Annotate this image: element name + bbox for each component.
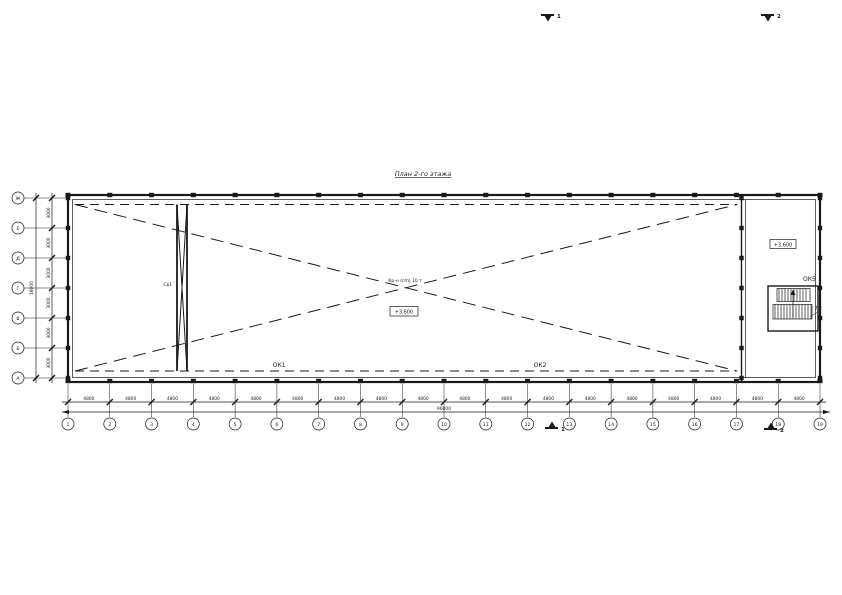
dim-value: 4800 bbox=[585, 396, 596, 402]
axis-number: 19 bbox=[817, 422, 823, 428]
axis-number: 12 bbox=[525, 422, 531, 428]
dim-value: 4800 bbox=[250, 396, 261, 402]
window-label-ok5: ОК5 bbox=[803, 276, 816, 283]
column-mark-bottom bbox=[233, 379, 238, 383]
floor-plan-svg: План 2-го этажа Св1 Кр-н (г/п) 10 т +3.6… bbox=[0, 0, 842, 595]
column-mark-top bbox=[525, 193, 530, 197]
column-mark-bottom bbox=[609, 379, 614, 383]
dim-value: 4800 bbox=[626, 396, 637, 402]
axis-letter: Б bbox=[16, 346, 19, 352]
column-mark-right-wall bbox=[818, 256, 822, 260]
column-mark-top bbox=[734, 193, 739, 197]
column-mark-top bbox=[191, 193, 196, 197]
dim-value: 4800 bbox=[376, 396, 387, 402]
drawing-title: План 2-го этажа bbox=[395, 170, 451, 178]
dim-value: 4800 bbox=[418, 396, 429, 402]
axis-number: 1 bbox=[67, 422, 70, 428]
column-mark-top bbox=[650, 193, 655, 197]
axis-number: 2 bbox=[108, 422, 111, 428]
axis-number: 11 bbox=[483, 422, 489, 428]
dim-value: 4800 bbox=[334, 396, 345, 402]
dim-value: 4800 bbox=[209, 396, 220, 402]
dim-value: 4800 bbox=[292, 396, 303, 402]
building-inner-wall-line bbox=[73, 200, 816, 378]
column-mark-partition-wall bbox=[739, 226, 743, 230]
column-mark-top bbox=[107, 193, 112, 197]
column-mark-top bbox=[776, 193, 781, 197]
axis-number: 15 bbox=[650, 422, 656, 428]
dim-value: 4800 bbox=[794, 396, 805, 402]
axis-letter: А bbox=[16, 376, 20, 382]
column-mark-bottom bbox=[442, 379, 447, 383]
dim-value: 4800 bbox=[668, 396, 679, 402]
dim-value: 3000 bbox=[46, 237, 52, 248]
column-mark-right-wall bbox=[818, 286, 822, 290]
braced-shaft bbox=[177, 205, 187, 372]
axis-letter: Ж bbox=[16, 196, 21, 202]
section-number-left-top: 1 bbox=[557, 14, 561, 20]
axis-number: 5 bbox=[234, 422, 237, 428]
column-mark-bottom bbox=[358, 379, 363, 383]
axis-number: 8 bbox=[359, 422, 362, 428]
column-mark-top bbox=[274, 193, 279, 197]
axis-number: 6 bbox=[275, 422, 278, 428]
column-mark-partition-wall bbox=[739, 196, 743, 200]
axis-letter: Г bbox=[17, 286, 20, 292]
column-mark-right-wall bbox=[818, 316, 822, 320]
axis-number: 14 bbox=[608, 422, 614, 428]
column-mark-top bbox=[442, 193, 447, 197]
dim-value: 3000 bbox=[46, 267, 52, 278]
axis-number: 3 bbox=[150, 422, 153, 428]
column-mark-partition-wall bbox=[739, 376, 743, 380]
section-marker-left-top bbox=[541, 15, 554, 22]
column-mark-partition-wall bbox=[739, 286, 743, 290]
dim-arrow-right bbox=[823, 410, 830, 414]
column-mark-bottom bbox=[650, 379, 655, 383]
dim-value: 4800 bbox=[501, 396, 512, 402]
dim-value: 4800 bbox=[752, 396, 763, 402]
floor-plan-canvas: План 2-го этажа Св1 Кр-н (г/п) 10 т +3.6… bbox=[0, 0, 842, 595]
column-mark-right-wall bbox=[818, 226, 822, 230]
column-mark-top bbox=[400, 193, 405, 197]
column-mark-top bbox=[483, 193, 488, 197]
column-mark-bottom bbox=[483, 379, 488, 383]
axis-number: 10 bbox=[441, 422, 447, 428]
section-marker-left-bottom bbox=[545, 422, 558, 429]
column-mark-partition-wall bbox=[739, 346, 743, 350]
column-mark-bottom bbox=[734, 379, 739, 383]
center-note: Кр-н (г/п) 10 т bbox=[388, 278, 422, 284]
dim-value: 4800 bbox=[543, 396, 554, 402]
stair-label: Л2 bbox=[815, 306, 822, 312]
column-mark-top bbox=[358, 193, 363, 197]
column-mark-bottom bbox=[274, 379, 279, 383]
dim-value: 3000 bbox=[46, 207, 52, 218]
column-mark-bottom bbox=[149, 379, 154, 383]
column-mark-right-wall bbox=[818, 376, 822, 380]
window-label-ok1: ОК1 bbox=[273, 362, 286, 369]
dim-value: 4800 bbox=[83, 396, 94, 402]
building-outline bbox=[68, 195, 820, 382]
column-mark-top bbox=[233, 193, 238, 197]
axis-letter: Д bbox=[16, 256, 20, 262]
column-mark-top bbox=[609, 193, 614, 197]
section-number-right-top: 2 bbox=[777, 14, 781, 20]
column-mark-top bbox=[692, 193, 697, 197]
axis-number: 13 bbox=[566, 422, 572, 428]
column-mark-bottom bbox=[567, 379, 572, 383]
axis-number: 16 bbox=[692, 422, 698, 428]
dim-value: 4800 bbox=[167, 396, 178, 402]
section-marker-right-top bbox=[761, 15, 774, 22]
window-label-ok2: ОК2 bbox=[534, 362, 547, 369]
column-mark-top bbox=[149, 193, 154, 197]
column-mark-bottom bbox=[316, 379, 321, 383]
stair-level-value: +3.600 bbox=[774, 243, 793, 249]
axis-number: 18 bbox=[775, 422, 781, 428]
column-mark-bottom bbox=[191, 379, 196, 383]
dim-value: 4800 bbox=[459, 396, 470, 402]
column-mark-partition-wall bbox=[739, 256, 743, 260]
stair-detail bbox=[768, 286, 819, 331]
column-mark-right-wall bbox=[818, 346, 822, 350]
dim-value: 4800 bbox=[710, 396, 721, 402]
column-mark-bottom bbox=[525, 379, 530, 383]
axis-letter: В bbox=[16, 316, 19, 322]
column-mark-top bbox=[316, 193, 321, 197]
column-mark-bottom bbox=[692, 379, 697, 383]
column-mark-partition-wall bbox=[739, 316, 743, 320]
column-mark-bottom bbox=[776, 379, 781, 383]
column-mark-right-wall bbox=[818, 196, 822, 200]
column-mark-bottom bbox=[400, 379, 405, 383]
column-mark-bottom bbox=[107, 379, 112, 383]
brace-label: Св1 bbox=[163, 282, 172, 288]
axis-number: 17 bbox=[734, 422, 740, 428]
axis-letter: Е bbox=[17, 226, 20, 232]
axis-number: 7 bbox=[317, 422, 320, 428]
column-mark-top bbox=[567, 193, 572, 197]
dim-value: 3000 bbox=[46, 327, 52, 338]
axis-number: 9 bbox=[401, 422, 404, 428]
center-level-value: +3.600 bbox=[395, 310, 414, 316]
axis-number: 4 bbox=[192, 422, 195, 428]
dim-value: 3000 bbox=[46, 297, 52, 308]
dim-value: 3000 bbox=[46, 357, 52, 368]
dim-value: 4800 bbox=[125, 396, 136, 402]
